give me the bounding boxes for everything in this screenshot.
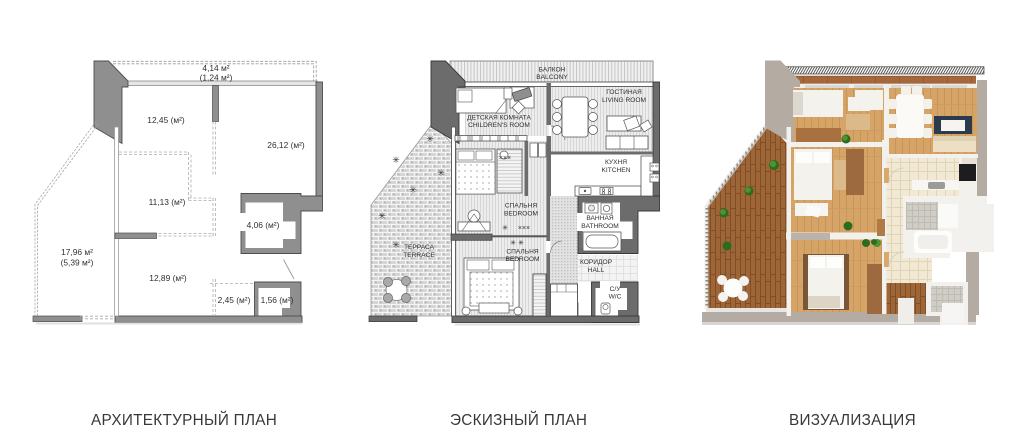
svg-text:✳: ✳	[409, 185, 417, 195]
svg-text:BEDROOM: BEDROOM	[504, 211, 538, 218]
svg-text:ТЕРРАСА: ТЕРРАСА	[404, 244, 435, 251]
svg-text:17,96 м²: 17,96 м²	[61, 247, 93, 257]
svg-text:✳: ✳	[437, 168, 445, 178]
svg-text:×××: ×××	[518, 225, 530, 232]
svg-text:HALL: HALL	[588, 267, 605, 274]
svg-text:ГОСТИНАЯ: ГОСТИНАЯ	[606, 89, 642, 96]
svg-text:BATHROOM: BATHROOM	[581, 223, 619, 230]
svg-text:✳: ✳	[378, 211, 386, 221]
svg-text:КУХНЯ: КУХНЯ	[605, 159, 627, 166]
svg-text:✳: ✳	[392, 240, 400, 250]
svg-text:ВИЗУАЛИЗАЦИЯ: ВИЗУАЛИЗАЦИЯ	[789, 412, 916, 429]
svg-text:ДЕТСКАЯ КОМНАТА: ДЕТСКАЯ КОМНАТА	[467, 115, 531, 122]
svg-text:1,56 (м²): 1,56 (м²)	[261, 295, 294, 305]
svg-text:ЭСКИЗНЫЙ ПЛАН: ЭСКИЗНЫЙ ПЛАН	[450, 411, 587, 429]
svg-text:ВАННАЯ: ВАННАЯ	[586, 215, 613, 222]
svg-text:✳: ✳	[392, 155, 400, 165]
svg-text:12,89 (м²): 12,89 (м²)	[149, 273, 187, 283]
svg-text:11,13 (м²): 11,13 (м²)	[149, 197, 186, 207]
svg-text:КОРИДОР: КОРИДОР	[580, 259, 613, 266]
svg-text:26,12 (м²): 26,12 (м²)	[267, 140, 305, 150]
svg-text:12,45 (м²): 12,45 (м²)	[147, 115, 185, 125]
svg-text:KITCHEN: KITCHEN	[602, 167, 631, 174]
svg-text:TERRACE: TERRACE	[403, 252, 435, 259]
svg-text:BEDROOM: BEDROOM	[505, 256, 539, 263]
svg-text:✳ ✳: ✳ ✳	[510, 239, 524, 247]
svg-text:(5,39 м²): (5,39 м²)	[61, 258, 94, 268]
svg-text:(1,24 м²): (1,24 м²)	[200, 73, 233, 83]
svg-text:АРХИТЕКТУРНЫЙ ПЛАН: АРХИТЕКТУРНЫЙ ПЛАН	[91, 411, 277, 429]
svg-text:СПАЛЬНЯ: СПАЛЬНЯ	[505, 203, 537, 210]
svg-text:4,06 (м²): 4,06 (м²)	[247, 220, 280, 230]
svg-text:W/C: W/C	[609, 294, 622, 301]
svg-text:CHILDREN'S ROOM: CHILDREN'S ROOM	[468, 122, 530, 129]
svg-text:С/У: С/У	[610, 286, 622, 293]
svg-text:БАЛКОН: БАЛКОН	[539, 67, 566, 74]
svg-text:СПАЛЬНЯ: СПАЛЬНЯ	[506, 249, 538, 256]
svg-text:✳: ✳	[502, 224, 508, 232]
svg-text:LIVING ROOM: LIVING ROOM	[602, 97, 646, 104]
svg-text:✳: ✳	[426, 134, 434, 144]
svg-text:BALCONY: BALCONY	[536, 74, 568, 81]
svg-text:4,14 м²: 4,14 м²	[202, 63, 229, 73]
svg-text:2,45 (м²): 2,45 (м²)	[218, 295, 251, 305]
svg-text:×××: ×××	[499, 155, 511, 162]
